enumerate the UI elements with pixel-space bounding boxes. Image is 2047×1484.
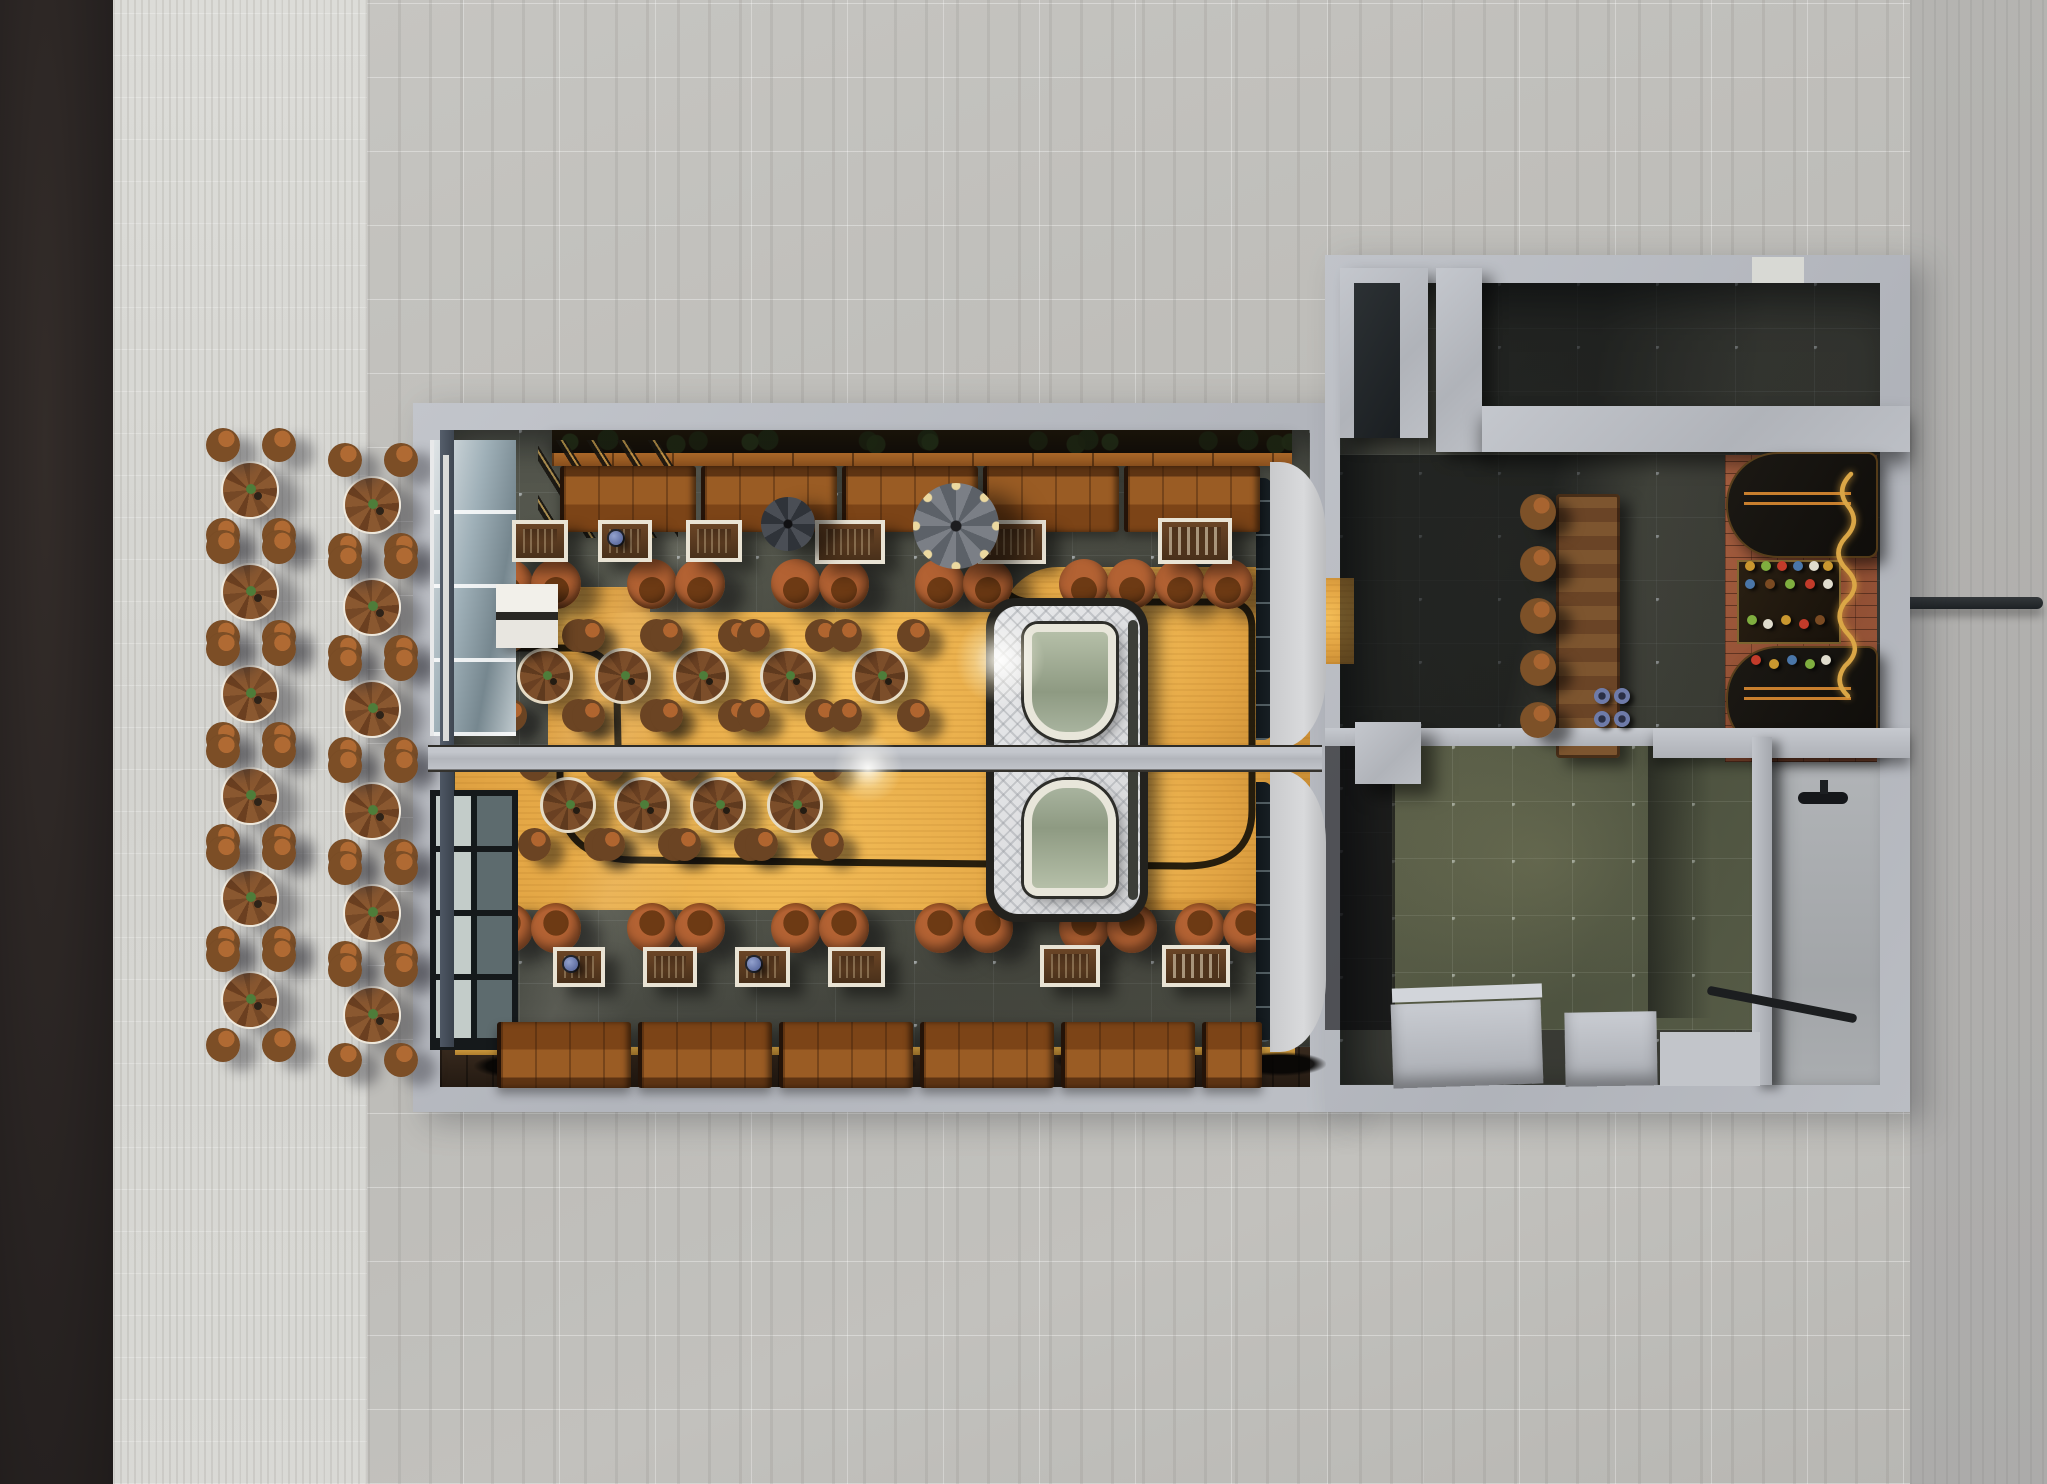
- shadow-overlay: [1482, 283, 1880, 406]
- tub-chair: [1175, 903, 1225, 953]
- outdoor-stool: [262, 1028, 296, 1062]
- liquor-bottle: [1745, 561, 1755, 571]
- tub-chair: [1059, 903, 1109, 953]
- dining-stool: [584, 748, 617, 781]
- tub-chair: [819, 903, 869, 953]
- floor-decal: [1053, 1047, 1148, 1085]
- trailer-windshield-top: [1024, 624, 1116, 740]
- outdoor-stool: [328, 647, 362, 681]
- dining-stool: [734, 828, 767, 861]
- script-sign-path: [1838, 474, 1854, 696]
- outdoor-stool: [262, 530, 296, 564]
- curved-glass-bottom: [1256, 782, 1282, 1042]
- liquor-bottle: [1815, 615, 1825, 625]
- freestanding-wall: [1563, 737, 1654, 1015]
- dining-stool: [734, 748, 767, 781]
- round-dining-table: [767, 777, 823, 833]
- bar-stool: [1520, 702, 1556, 738]
- access-ramp-2: [1564, 1011, 1657, 1087]
- outdoor-stool: [384, 647, 418, 681]
- dining-room-top-floor: [440, 430, 1310, 745]
- curved-wall-bottom: [1270, 770, 1326, 1052]
- shadow-overlay: [1340, 455, 1885, 738]
- liquor-bottle: [1751, 655, 1761, 665]
- walkway-gold-stripe-2: [1190, 1047, 1295, 1055]
- outdoor-stool: [384, 737, 418, 771]
- outdoor-stool: [206, 824, 240, 858]
- dining-block-walls: [413, 403, 1340, 1112]
- outdoor-stool: [206, 722, 240, 756]
- hall-partition-wall: [1482, 406, 1910, 452]
- wood-rail: [552, 453, 1292, 466]
- liquor-bottle: [1747, 615, 1757, 625]
- framed-table: [598, 520, 652, 562]
- vestibule-wall: [1340, 268, 1428, 438]
- liquor-bottle: [1763, 619, 1773, 629]
- dining-stool: [562, 619, 595, 652]
- outdoor-stool: [206, 428, 240, 462]
- sunlight-streak-top: [520, 430, 880, 745]
- round-dining-table: [760, 648, 816, 704]
- outdoor-stool: [328, 545, 362, 579]
- framed-table: [512, 520, 568, 562]
- pallet-decor: [713, 1041, 751, 1061]
- tub-chair: [1155, 559, 1205, 609]
- asphalt-road: [0, 0, 113, 1484]
- drink-cup: [1614, 688, 1630, 704]
- round-dining-table: [690, 777, 746, 833]
- framed-table: [553, 947, 605, 987]
- dining-stool: [572, 619, 605, 652]
- dining-stool: [668, 828, 701, 861]
- liquor-bottle: [1787, 655, 1797, 665]
- plant-canopy: [552, 430, 1292, 454]
- ceiling-fan: [913, 483, 999, 569]
- neon-script-sign: [0, 0, 2047, 1484]
- dining-stool: [592, 748, 625, 781]
- dining-stool: [494, 619, 527, 652]
- shadow-overlay: [1648, 746, 1712, 1018]
- liquor-bottle: [1793, 561, 1803, 571]
- dining-stool: [668, 748, 701, 781]
- vintage-trailer: [986, 598, 1148, 922]
- tub-chair: [627, 559, 677, 609]
- dining-stool: [897, 699, 930, 732]
- outdoor-table: [343, 986, 401, 1044]
- tub-chair: [771, 903, 821, 953]
- inner-wall-face-bottom: [440, 772, 454, 1047]
- outdoor-stool: [262, 722, 296, 756]
- floor-decal: [653, 1047, 748, 1085]
- booth-seat: [497, 1022, 631, 1088]
- wall-trim: [443, 455, 449, 741]
- tub-chair: [1059, 559, 1109, 609]
- entry-pendant-rack: [538, 440, 678, 538]
- outdoor-table: [221, 461, 279, 519]
- outdoor-table: [221, 563, 279, 621]
- dining-stool: [658, 828, 691, 861]
- path-guide-lines: [0, 0, 2047, 1484]
- dining-stool: [658, 748, 691, 781]
- bar-stool: [1520, 598, 1556, 634]
- dining-stool: [584, 828, 617, 861]
- dining-stool: [829, 619, 862, 652]
- floor-decal: [824, 1052, 916, 1076]
- right-wing-walls: [1325, 255, 1910, 1112]
- light-glow: [955, 615, 1045, 705]
- access-ramp: [1391, 999, 1544, 1088]
- outdoor-stool: [384, 443, 418, 477]
- outdoor-stool: [262, 824, 296, 858]
- shadow-overlay: [1325, 746, 1395, 1030]
- framed-table: [686, 520, 742, 562]
- outdoor-stool: [262, 518, 296, 552]
- dining-stool: [562, 699, 595, 732]
- curved-wall-top: [1270, 462, 1326, 748]
- outdoor-table: [221, 869, 279, 927]
- outdoor-stool: [206, 620, 240, 654]
- framed-table: [978, 520, 1046, 564]
- street-railing: [1893, 597, 2043, 609]
- dining-stool: [737, 619, 770, 652]
- utility-room-floor: [1772, 746, 1880, 1085]
- round-dining-table: [595, 648, 651, 704]
- back-wall-segment-2: [1653, 728, 1910, 758]
- rear-door: [1752, 257, 1804, 283]
- tub-chair: [1107, 903, 1157, 953]
- floor-decal: [474, 1054, 566, 1078]
- tub-chair: [963, 903, 1013, 953]
- tub-chair: [531, 903, 581, 953]
- curved-glass-top: [1256, 478, 1282, 740]
- sink-fixture: [1798, 792, 1848, 804]
- outdoor-stool: [262, 620, 296, 654]
- outdoor-stool: [384, 635, 418, 669]
- outdoor-table: [343, 476, 401, 534]
- outdoor-stool: [328, 635, 362, 669]
- trailer-body: [994, 606, 1140, 914]
- outdoor-stool: [384, 1043, 418, 1077]
- outdoor-stool: [206, 836, 240, 870]
- tub-chair: [771, 559, 821, 609]
- marble-plaza: [367, 0, 1910, 1484]
- outdoor-stool: [206, 518, 240, 552]
- liquor-bottle: [1799, 619, 1809, 629]
- restaurant-floorplan-render: [0, 0, 2047, 1484]
- framed-table: [735, 947, 790, 987]
- outdoor-stool: [262, 734, 296, 768]
- gold-path-passage: [1312, 578, 1354, 664]
- liquor-bottle: [1745, 579, 1755, 589]
- dining-stool: [737, 699, 770, 732]
- dining-stool: [718, 699, 751, 732]
- framed-table: [643, 947, 697, 987]
- storefront-glass-top: [430, 440, 516, 736]
- outdoor-stool: [262, 632, 296, 666]
- outdoor-stool: [384, 851, 418, 885]
- outdoor-stool: [328, 839, 362, 873]
- outdoor-stool: [262, 428, 296, 462]
- outdoor-stool: [206, 632, 240, 666]
- booth-seat: [983, 466, 1119, 532]
- drink-cup: [1594, 688, 1610, 704]
- booth-seat: [1061, 1022, 1195, 1088]
- brick-bar-floor: [1725, 455, 1877, 762]
- outdoor-table: [221, 665, 279, 723]
- outdoor-stool: [328, 749, 362, 783]
- host-desk: [496, 584, 558, 648]
- tub-chair: [483, 559, 533, 609]
- tub-chair: [915, 903, 965, 953]
- dining-stool: [897, 619, 930, 652]
- booth-seat: [779, 1022, 913, 1088]
- liquor-bottle: [1805, 659, 1815, 669]
- drink-cup: [1614, 711, 1630, 727]
- concrete-strip: [1910, 0, 2047, 1484]
- bar-stool: [1520, 546, 1556, 582]
- dining-stool: [805, 699, 838, 732]
- liquor-bottle: [1769, 659, 1779, 669]
- framed-table: [815, 520, 885, 564]
- dining-stool: [829, 699, 862, 732]
- guide-line-bottom: [560, 772, 1252, 866]
- partition-wall: [1752, 737, 1772, 1085]
- round-dining-table: [852, 648, 908, 704]
- outdoor-stool: [328, 533, 362, 567]
- light-glow-2: [833, 733, 903, 803]
- gold-path-entry: [500, 587, 650, 650]
- tub-chair: [675, 903, 725, 953]
- outdoor-table: [343, 578, 401, 636]
- gold-path-top-right: [1000, 567, 1310, 745]
- dining-stool: [650, 699, 683, 732]
- outdoor-stool: [262, 926, 296, 960]
- sunlight-streak-bottom: [470, 772, 830, 1047]
- trailer-side-trim: [1128, 620, 1138, 900]
- vestibule-wall-2: [1436, 268, 1482, 452]
- walkway-gold-stripe: [455, 1047, 1155, 1055]
- wood-walkway: [440, 1047, 1310, 1087]
- booth-seat: [920, 1022, 1054, 1088]
- outdoor-stool: [384, 953, 418, 987]
- dining-stool: [592, 828, 625, 861]
- booth-seat: [1202, 1022, 1262, 1088]
- outdoor-table: [221, 971, 279, 1029]
- dining-stool: [805, 619, 838, 652]
- gold-path-top-band: [548, 612, 1310, 745]
- dining-stool: [640, 699, 673, 732]
- tub-chair: [675, 559, 725, 609]
- surfboard-decor: [1077, 1053, 1151, 1066]
- liquor-bottle: [1781, 615, 1791, 625]
- dining-stool: [640, 619, 673, 652]
- booth-seat: [842, 466, 978, 532]
- dining-stool: [811, 748, 844, 781]
- communal-bar-table: [1556, 494, 1620, 758]
- tub-chair: [627, 903, 677, 953]
- round-dining-table: [614, 777, 670, 833]
- outdoor-stool: [262, 836, 296, 870]
- leaning-plank: [1707, 986, 1858, 1024]
- liquor-bottle: [1809, 561, 1819, 571]
- liquor-bottle: [1823, 579, 1833, 589]
- concrete-shelf: [1647, 849, 1792, 883]
- outdoor-stool: [328, 851, 362, 885]
- liquor-bottle: [1821, 655, 1831, 665]
- outdoor-stool: [328, 953, 362, 987]
- gold-path-bottom-right: [1000, 772, 1310, 900]
- trailer-windshield-bottom: [1024, 780, 1116, 896]
- framed-table: [1158, 518, 1232, 564]
- dining-stool: [811, 828, 844, 861]
- window-wall-bottom: [430, 790, 518, 1050]
- outdoor-stool: [262, 938, 296, 972]
- outdoor-stool: [206, 1028, 240, 1062]
- drink-cup: [1594, 711, 1610, 727]
- round-dining-table: [517, 648, 573, 704]
- outdoor-table: [221, 767, 279, 825]
- outdoor-table: [343, 884, 401, 942]
- dining-stool: [745, 828, 778, 861]
- outdoor-stool: [384, 749, 418, 783]
- bar-counter-1: [1726, 452, 1878, 558]
- tub-chair: [963, 559, 1013, 609]
- room-divider-wall: [428, 745, 1322, 772]
- booth-seat: [1124, 466, 1260, 532]
- tub-chair: [915, 559, 965, 609]
- tub-chair: [1223, 903, 1273, 953]
- tub-chair: [1107, 559, 1157, 609]
- bar-counter-2: [1726, 646, 1878, 754]
- outdoor-stool: [384, 941, 418, 975]
- liquor-bottle: [1761, 561, 1771, 571]
- dining-stool: [518, 748, 551, 781]
- bottle-shelf: [1737, 560, 1841, 644]
- bar-stool: [1520, 650, 1556, 686]
- dining-stool: [650, 619, 683, 652]
- inner-wall-face-top: [440, 430, 454, 745]
- liquor-bottle: [1805, 579, 1815, 589]
- outdoor-stool: [384, 533, 418, 567]
- booth-seat: [638, 1022, 772, 1088]
- dining-stool: [572, 699, 605, 732]
- back-wall-segment: [1325, 728, 1657, 746]
- bar-stool: [1520, 494, 1556, 530]
- round-dining-table: [673, 648, 729, 704]
- floor-decal: [1234, 1052, 1326, 1076]
- liquor-bottle: [1785, 579, 1795, 589]
- dining-stool: [745, 748, 778, 781]
- tub-chair: [483, 903, 533, 953]
- right-wing-floor: [1340, 283, 1880, 1085]
- paved-sidewalk: [113, 0, 367, 1484]
- wall-block: [1355, 722, 1421, 784]
- dining-room-bottom-floor: [440, 772, 1310, 1047]
- framed-table: [828, 947, 885, 987]
- dining-stool: [718, 619, 751, 652]
- guide-line-top: [500, 575, 1252, 745]
- outdoor-stool: [206, 530, 240, 564]
- gold-path-bottom-band: [455, 772, 1310, 910]
- round-dining-table: [540, 777, 596, 833]
- back-rooms-floor: [1392, 746, 1756, 1030]
- outdoor-stool: [206, 938, 240, 972]
- framed-table: [1040, 945, 1100, 987]
- outdoor-stool: [328, 737, 362, 771]
- outdoor-stool: [384, 839, 418, 873]
- outdoor-table: [343, 680, 401, 738]
- dining-stool: [518, 828, 551, 861]
- tub-chair: [1203, 559, 1253, 609]
- tub-chair: [531, 559, 581, 609]
- outdoor-stool: [328, 941, 362, 975]
- framed-table: [1162, 945, 1230, 987]
- ceiling-fan: [761, 497, 815, 551]
- floor-slab: [1660, 1032, 1760, 1086]
- booth-seat: [701, 466, 837, 532]
- outdoor-table: [343, 782, 401, 840]
- outdoor-stool: [206, 734, 240, 768]
- outdoor-stool: [206, 926, 240, 960]
- liquor-bottle: [1765, 579, 1775, 589]
- liquor-bottle: [1823, 561, 1833, 571]
- ramp-step: [1392, 983, 1542, 1002]
- outdoor-stool: [384, 545, 418, 579]
- tub-chair: [819, 559, 869, 609]
- outdoor-stool: [328, 1043, 362, 1077]
- outdoor-stool: [328, 443, 362, 477]
- booth-seat: [560, 466, 696, 532]
- liquor-bottle: [1777, 561, 1787, 571]
- dining-stool: [494, 699, 527, 732]
